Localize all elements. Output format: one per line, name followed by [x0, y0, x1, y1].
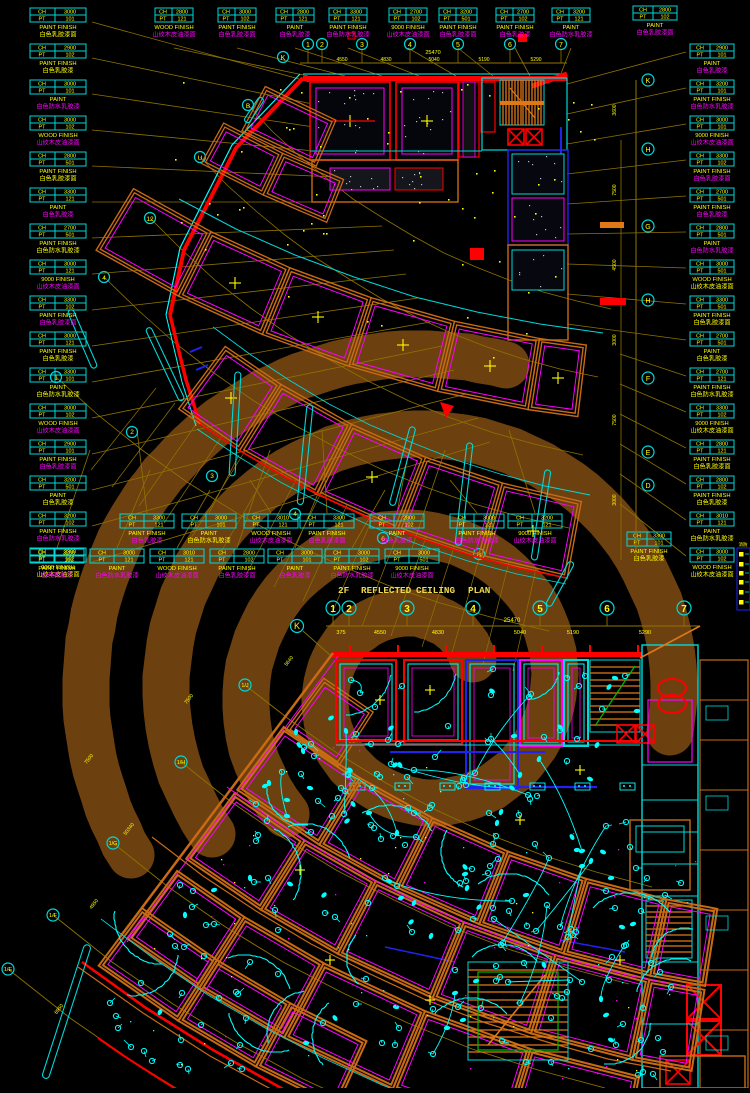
svg-text:PT: PT: [379, 523, 387, 529]
svg-text:白色乳胶漆: 白色乳胶漆: [43, 499, 74, 507]
svg-text:CH: CH: [556, 10, 564, 16]
svg-text:白色乳胶漆面: 白色乳胶漆面: [39, 463, 76, 471]
svg-text:PAINT FINISH: PAINT FINISH: [693, 313, 730, 319]
svg-text:101: 101: [303, 558, 312, 564]
svg-text:消防: 消防: [739, 541, 748, 548]
svg-text:3200: 3200: [460, 10, 472, 16]
svg-text:3300: 3300: [716, 406, 728, 412]
svg-text:CH: CH: [378, 516, 386, 522]
svg-text:3200: 3200: [63, 551, 75, 557]
svg-text:102: 102: [66, 53, 75, 59]
svg-text:102: 102: [405, 523, 414, 529]
svg-text:2800: 2800: [659, 8, 671, 14]
svg-text:CH: CH: [696, 514, 704, 520]
svg-text:3000: 3000: [716, 262, 728, 268]
svg-text:CH: CH: [393, 10, 401, 16]
svg-text:4500: 4500: [612, 259, 618, 270]
svg-text:PT: PT: [697, 269, 705, 275]
svg-text:121: 121: [66, 341, 75, 347]
svg-text:白色防水乳胶漆: 白色防水乳胶漆: [690, 247, 733, 255]
svg-text:2700: 2700: [64, 226, 76, 232]
svg-text:CH: CH: [38, 190, 46, 196]
svg-text:121: 121: [66, 197, 75, 203]
svg-text:CH: CH: [516, 516, 524, 522]
svg-text:PT: PT: [39, 53, 47, 59]
svg-text:CH: CH: [38, 10, 46, 16]
svg-text:山纹木皮油漆面: 山纹木皮油漆面: [155, 572, 198, 580]
svg-text:CH: CH: [696, 46, 704, 52]
svg-text:山纹木皮油漆面: 山纹木皮油漆面: [690, 571, 733, 579]
svg-text:山纹木皮油漆面: 山纹木皮油漆面: [36, 283, 79, 291]
svg-text:9000 FINISH: 9000 FINISH: [41, 277, 75, 283]
svg-text:3200: 3200: [716, 82, 728, 88]
svg-text:白色防水乳胶漆: 白色防水乳胶漆: [187, 537, 230, 545]
svg-text:CH: CH: [458, 516, 466, 522]
svg-text:PAINT FINISH: PAINT FINISH: [329, 25, 366, 31]
svg-text:2700: 2700: [716, 370, 728, 376]
svg-text:121: 121: [718, 521, 727, 527]
svg-text:5290: 5290: [639, 630, 651, 636]
svg-text:501: 501: [420, 558, 429, 564]
svg-text:2800: 2800: [176, 10, 188, 16]
svg-text:CH: CH: [333, 551, 341, 557]
svg-text:3000: 3000: [612, 334, 618, 345]
svg-text:PLAN: PLAN: [468, 585, 490, 596]
svg-text:PT: PT: [697, 521, 705, 527]
svg-text:3000: 3000: [64, 262, 76, 268]
svg-text:PT: PT: [697, 557, 705, 563]
svg-text:CH: CH: [38, 154, 46, 160]
svg-text:PAINT FINISH: PAINT FINISH: [458, 531, 495, 537]
svg-text:4830: 4830: [380, 57, 391, 63]
svg-text:101: 101: [655, 541, 664, 547]
svg-text:2900: 2900: [716, 46, 728, 52]
svg-text:2: 2: [320, 42, 324, 49]
svg-text:白色乳胶漆面: 白色乳胶漆面: [39, 31, 76, 39]
svg-text:PAINT: PAINT: [704, 241, 721, 247]
svg-text:4: 4: [102, 275, 106, 282]
svg-text:白色乳胶漆面: 白色乳胶漆面: [693, 319, 730, 327]
svg-text:101: 101: [66, 17, 75, 23]
svg-text:白色乳胶漆面: 白色乳胶漆面: [39, 319, 76, 327]
svg-text:PT: PT: [640, 15, 648, 21]
svg-text:9000 FINISH: 9000 FINISH: [391, 25, 425, 31]
svg-text:2800: 2800: [64, 154, 76, 160]
svg-text:501: 501: [718, 269, 727, 275]
svg-text:PT: PT: [39, 89, 47, 95]
svg-text:白色防水乳胶漆: 白色防水乳胶漆: [36, 103, 79, 111]
svg-text:PT: PT: [39, 161, 47, 167]
svg-text:5190: 5190: [478, 57, 489, 63]
svg-text:5: 5: [456, 42, 460, 49]
svg-text:1: 1: [330, 604, 336, 615]
svg-text:D: D: [645, 483, 650, 490]
svg-text:PT: PT: [697, 377, 705, 383]
svg-text:PT: PT: [557, 17, 565, 23]
svg-text:K: K: [281, 55, 286, 62]
svg-text:白色防水乳胶漆: 白色防水乳胶漆: [95, 572, 138, 580]
svg-text:CH: CH: [38, 226, 46, 232]
svg-text:121: 121: [718, 449, 727, 455]
svg-text:CH: CH: [38, 334, 46, 340]
svg-text:3010: 3010: [277, 516, 289, 522]
svg-text:3: 3: [210, 473, 214, 480]
svg-text:PT: PT: [697, 413, 705, 419]
svg-text:山纹木皮油漆面: 山纹木皮油漆面: [690, 427, 733, 435]
svg-text:PT: PT: [39, 197, 47, 203]
svg-text:CH: CH: [190, 516, 198, 522]
svg-text:7: 7: [559, 42, 563, 49]
svg-text:PAINT: PAINT: [109, 566, 126, 572]
svg-text:102: 102: [661, 15, 670, 21]
svg-text:121: 121: [178, 17, 187, 23]
svg-text:PT: PT: [39, 341, 47, 347]
svg-text:7500: 7500: [612, 414, 618, 425]
svg-text:3000: 3000: [215, 516, 227, 522]
svg-text:PAINT FINISH: PAINT FINISH: [693, 205, 730, 211]
svg-text:PT: PT: [697, 53, 705, 59]
svg-text:121: 121: [352, 17, 361, 23]
svg-text:U: U: [198, 155, 203, 162]
svg-text:WOOD FINISH: WOOD FINISH: [157, 566, 196, 572]
svg-text:121: 121: [125, 558, 134, 564]
svg-text:2800: 2800: [403, 516, 415, 522]
svg-text:PT: PT: [39, 269, 47, 275]
svg-text:PT: PT: [253, 523, 261, 529]
svg-text:25470: 25470: [504, 618, 521, 624]
svg-text:白色乳胶漆: 白色乳胶漆: [42, 572, 73, 580]
svg-text:1/E: 1/E: [4, 967, 13, 973]
svg-text:白色防水乳胶漆: 白色防水乳胶漆: [36, 535, 79, 543]
svg-text:PAINT FINISH: PAINT FINISH: [39, 457, 76, 463]
svg-text:CH: CH: [38, 406, 46, 412]
svg-text:CH: CH: [280, 10, 288, 16]
svg-text:2: 2: [346, 604, 352, 615]
svg-text:PT: PT: [697, 449, 705, 455]
svg-text:PAINT FINISH: PAINT FINISH: [39, 529, 76, 535]
svg-text:B: B: [246, 103, 250, 110]
svg-text:PAINT FINISH: PAINT FINISH: [496, 25, 533, 31]
svg-text:白色乳胶漆面: 白色乳胶漆面: [439, 31, 476, 39]
svg-text:3000: 3000: [716, 550, 728, 556]
svg-text:PT: PT: [334, 558, 342, 564]
svg-text:PT: PT: [697, 341, 705, 347]
svg-text:102: 102: [519, 17, 528, 23]
svg-text:白色乳胶漆: 白色乳胶漆: [697, 355, 728, 363]
svg-text:白色防水乳胶漆: 白色防水乳胶漆: [690, 535, 733, 543]
svg-text:PAINT: PAINT: [201, 531, 218, 537]
svg-text:白色防水乳胶漆: 白色防水乳胶漆: [549, 31, 592, 39]
svg-text:白色防水乳胶漆: 白色防水乳胶漆: [36, 391, 79, 399]
svg-text:501: 501: [718, 341, 727, 347]
svg-text:2700: 2700: [716, 190, 728, 196]
svg-text:101: 101: [66, 449, 75, 455]
svg-text:9000 FINISH: 9000 FINISH: [395, 566, 429, 572]
svg-text:CH: CH: [128, 516, 136, 522]
svg-text:白色乳胶漆面: 白色乳胶漆面: [308, 537, 345, 545]
svg-text:PAINT FINISH: PAINT FINISH: [39, 25, 76, 31]
svg-text:PAINT FINISH: PAINT FINISH: [39, 313, 76, 319]
svg-text:501: 501: [66, 233, 75, 239]
svg-text:PT: PT: [39, 558, 47, 564]
svg-text:CH: CH: [696, 82, 704, 88]
svg-text:3300: 3300: [716, 154, 728, 160]
svg-text:3000: 3000: [64, 334, 76, 340]
svg-text:2900: 2900: [64, 442, 76, 448]
svg-text:2800: 2800: [716, 442, 728, 448]
svg-text:2900: 2900: [64, 46, 76, 52]
svg-text:2800: 2800: [716, 226, 728, 232]
svg-text:121: 121: [718, 377, 727, 383]
svg-text:CH: CH: [158, 551, 166, 557]
svg-text:101: 101: [217, 523, 226, 529]
svg-text:101: 101: [718, 125, 727, 131]
svg-text:PAINT FINISH: PAINT FINISH: [39, 241, 76, 247]
svg-text:PAINT FINISH: PAINT FINISH: [218, 25, 255, 31]
svg-text:PAINT: PAINT: [287, 25, 304, 31]
svg-text:102: 102: [718, 161, 727, 167]
svg-text:白色防水乳胶漆: 白色防水乳胶漆: [690, 103, 733, 111]
svg-text:5040: 5040: [514, 630, 526, 636]
svg-text:REFLECTED: REFLECTED: [361, 585, 412, 596]
svg-text:102: 102: [241, 17, 250, 23]
svg-text:25470: 25470: [425, 50, 440, 56]
svg-text:102: 102: [66, 413, 75, 419]
svg-text:121: 121: [66, 269, 75, 275]
svg-text:121: 121: [155, 523, 164, 529]
svg-text:501: 501: [462, 17, 471, 23]
svg-text:5190: 5190: [567, 630, 579, 636]
svg-text:山纹木皮油漆面: 山纹木皮油漆面: [249, 537, 292, 545]
svg-text:WOOD FINISH: WOOD FINISH: [154, 25, 193, 31]
svg-text:F: F: [646, 376, 650, 383]
svg-text:3300: 3300: [333, 516, 345, 522]
svg-text:501: 501: [718, 233, 727, 239]
svg-text:PT: PT: [697, 233, 705, 239]
svg-text:3000: 3000: [64, 118, 76, 124]
svg-text:PT: PT: [394, 558, 402, 564]
svg-text:PT: PT: [39, 413, 47, 419]
svg-text:CH: CH: [696, 154, 704, 160]
svg-text:102: 102: [245, 558, 254, 564]
svg-text:PAINT: PAINT: [50, 205, 67, 211]
svg-text:PT: PT: [459, 523, 467, 529]
svg-text:PT: PT: [697, 485, 705, 491]
svg-text:H: H: [645, 298, 650, 305]
svg-text:CH: CH: [443, 10, 451, 16]
svg-text:101: 101: [66, 377, 75, 383]
svg-text:CH: CH: [38, 118, 46, 124]
svg-text:101: 101: [718, 53, 727, 59]
svg-text:1/J: 1/J: [241, 683, 249, 689]
svg-text:山纹木皮油漆面: 山纹木皮油漆面: [36, 139, 79, 147]
svg-text:1/G: 1/G: [109, 841, 118, 847]
svg-text:CH: CH: [38, 262, 46, 268]
svg-text:WOOD FINISH: WOOD FINISH: [692, 277, 731, 283]
svg-text:CH: CH: [696, 442, 704, 448]
svg-text:3000: 3000: [64, 10, 76, 16]
svg-text:3300: 3300: [350, 10, 362, 16]
svg-text:E: E: [646, 450, 651, 457]
svg-text:121: 121: [299, 17, 308, 23]
svg-text:PAINT FINISH: PAINT FINISH: [693, 457, 730, 463]
svg-text:2: 2: [130, 429, 134, 436]
svg-text:9000 FINISH: 9000 FINISH: [518, 531, 552, 537]
svg-text:121: 121: [335, 523, 344, 529]
svg-text:PT: PT: [697, 305, 705, 311]
svg-text:WOOD FINISH: WOOD FINISH: [38, 133, 77, 139]
svg-text:CH: CH: [98, 551, 106, 557]
svg-text:102: 102: [66, 521, 75, 527]
svg-text:山纹木皮油漆面: 山纹木皮油漆面: [36, 427, 79, 435]
svg-text:CH: CH: [276, 551, 284, 557]
svg-text:3000: 3000: [612, 494, 618, 505]
svg-text:501: 501: [66, 485, 75, 491]
svg-text:H: H: [645, 147, 650, 154]
svg-text:PT: PT: [277, 558, 285, 564]
svg-text:白色乳胶漆: 白色乳胶漆: [697, 67, 728, 75]
svg-text:CH: CH: [38, 514, 46, 520]
svg-text:PT: PT: [39, 449, 47, 455]
svg-text:121: 121: [575, 17, 584, 23]
svg-text:3200: 3200: [64, 478, 76, 484]
svg-text:PT: PT: [159, 558, 167, 564]
svg-text:白色乳胶漆: 白色乳胶漆: [132, 537, 163, 545]
svg-text:PAINT: PAINT: [704, 349, 721, 355]
svg-text:CH: CH: [38, 82, 46, 88]
svg-text:CH: CH: [218, 551, 226, 557]
svg-text:G: G: [645, 224, 650, 231]
svg-text:PT: PT: [334, 17, 342, 23]
svg-text:CH: CH: [696, 334, 704, 340]
svg-text:PAINT FINISH: PAINT FINISH: [439, 25, 476, 31]
svg-text:5040: 5040: [428, 57, 439, 63]
svg-text:3200: 3200: [573, 10, 585, 16]
svg-text:1: 1: [306, 42, 310, 49]
svg-text:PAINT: PAINT: [563, 25, 580, 31]
svg-text:102: 102: [65, 558, 74, 564]
svg-text:7: 7: [681, 604, 687, 615]
svg-text:2F: 2F: [338, 585, 350, 596]
svg-text:白色乳胶漆: 白色乳胶漆: [43, 211, 74, 219]
svg-text:白色乳胶漆: 白色乳胶漆: [697, 211, 728, 219]
svg-text:白色乳胶漆: 白色乳胶漆: [634, 555, 665, 563]
svg-text:山纹木皮油漆面: 山纹木皮油漆面: [690, 283, 733, 291]
svg-text:3010: 3010: [716, 514, 728, 520]
svg-text:102: 102: [718, 485, 727, 491]
svg-text:PAINT FINISH: PAINT FINISH: [693, 493, 730, 499]
svg-text:CH: CH: [393, 551, 401, 557]
svg-text:PT: PT: [219, 558, 227, 564]
svg-text:PAINT FINISH: PAINT FINISH: [39, 61, 76, 67]
svg-text:PAINT FINISH: PAINT FINISH: [693, 169, 730, 175]
svg-text:CH: CH: [38, 442, 46, 448]
svg-text:PT: PT: [697, 125, 705, 131]
svg-text:102: 102: [66, 305, 75, 311]
svg-text:501: 501: [718, 305, 727, 311]
svg-text:PAINT FINISH: PAINT FINISH: [308, 531, 345, 537]
svg-text:102: 102: [718, 413, 727, 419]
svg-text:6: 6: [604, 604, 610, 615]
svg-text:CH: CH: [38, 370, 46, 376]
svg-text:CH: CH: [696, 478, 704, 484]
svg-text:501: 501: [718, 197, 727, 203]
svg-text:PT: PT: [39, 17, 47, 23]
svg-text:3000: 3000: [239, 10, 251, 16]
svg-text:9000 FINISH: 9000 FINISH: [695, 421, 729, 427]
svg-text:CH: CH: [633, 534, 641, 540]
svg-text:PT: PT: [39, 305, 47, 311]
svg-text:3600: 3600: [612, 104, 618, 115]
svg-text:山纹木皮油漆面: 山纹木皮油漆面: [152, 31, 195, 39]
svg-text:PAINT: PAINT: [704, 61, 721, 67]
svg-text:501: 501: [66, 161, 75, 167]
svg-text:WOOD FINISH: WOOD FINISH: [38, 421, 77, 427]
svg-text:4: 4: [408, 42, 412, 49]
svg-text:3: 3: [360, 42, 364, 49]
svg-text:K: K: [294, 621, 300, 631]
svg-text:121: 121: [279, 523, 288, 529]
svg-text:PAINT: PAINT: [50, 385, 67, 391]
svg-text:PAINT FINISH: PAINT FINISH: [333, 566, 370, 572]
svg-text:3300: 3300: [64, 370, 76, 376]
svg-text:山纹木皮油漆面: 山纹木皮油漆面: [690, 139, 733, 147]
svg-text:4: 4: [470, 604, 476, 615]
svg-text:PT: PT: [39, 125, 47, 131]
svg-text:CH: CH: [696, 550, 704, 556]
svg-text:白色乳胶漆面: 白色乳胶漆面: [39, 175, 76, 183]
svg-text:3200: 3200: [64, 514, 76, 520]
svg-text:3300: 3300: [716, 298, 728, 304]
svg-text:白色乳胶漆: 白色乳胶漆: [43, 355, 74, 363]
svg-text:PAINT: PAINT: [50, 493, 67, 499]
svg-text:PT: PT: [501, 17, 509, 23]
svg-text:PAINT FINISH: PAINT FINISH: [693, 97, 730, 103]
svg-text:4830: 4830: [432, 630, 444, 636]
svg-text:PT: PT: [444, 17, 452, 23]
svg-text:CH: CH: [38, 478, 46, 484]
svg-text:5: 5: [537, 604, 543, 615]
svg-text:3000: 3000: [301, 551, 313, 557]
svg-text:白色乳胶漆: 白色乳胶漆: [280, 572, 311, 580]
svg-text:白色防水乳胶漆: 白色防水乳胶漆: [330, 572, 373, 580]
svg-text:9000 FINISH: 9000 FINISH: [695, 133, 729, 139]
svg-text:4550: 4550: [374, 630, 386, 636]
svg-text:白色防水乳胶漆: 白色防水乳胶漆: [36, 247, 79, 255]
svg-text:PT: PT: [160, 17, 168, 23]
svg-text:白色乳胶漆: 白色乳胶漆: [697, 499, 728, 507]
svg-text:3000: 3000: [123, 551, 135, 557]
svg-text:2700: 2700: [410, 10, 422, 16]
svg-text:PT: PT: [394, 17, 402, 23]
svg-text:1/F: 1/F: [49, 913, 58, 919]
svg-text:白色乳胶漆面: 白色乳胶漆面: [693, 463, 730, 471]
svg-text:PAINT: PAINT: [50, 97, 67, 103]
svg-text:PAINT FINISH: PAINT FINISH: [38, 566, 75, 572]
svg-text:PAINT: PAINT: [287, 566, 304, 572]
svg-text:3000: 3000: [64, 82, 76, 88]
svg-text:白色乳胶漆: 白色乳胶漆: [500, 31, 531, 39]
svg-text:CH: CH: [38, 46, 46, 52]
svg-text:PT: PT: [191, 523, 199, 529]
svg-text:PT: PT: [99, 558, 107, 564]
svg-text:PAINT FINISH: PAINT FINISH: [128, 531, 165, 537]
svg-text:白色乳胶漆: 白色乳胶漆: [280, 31, 311, 39]
svg-text:102: 102: [66, 125, 75, 131]
svg-text:CEILING: CEILING: [416, 585, 455, 596]
svg-text:2800: 2800: [716, 478, 728, 484]
svg-text:3: 3: [404, 604, 410, 615]
